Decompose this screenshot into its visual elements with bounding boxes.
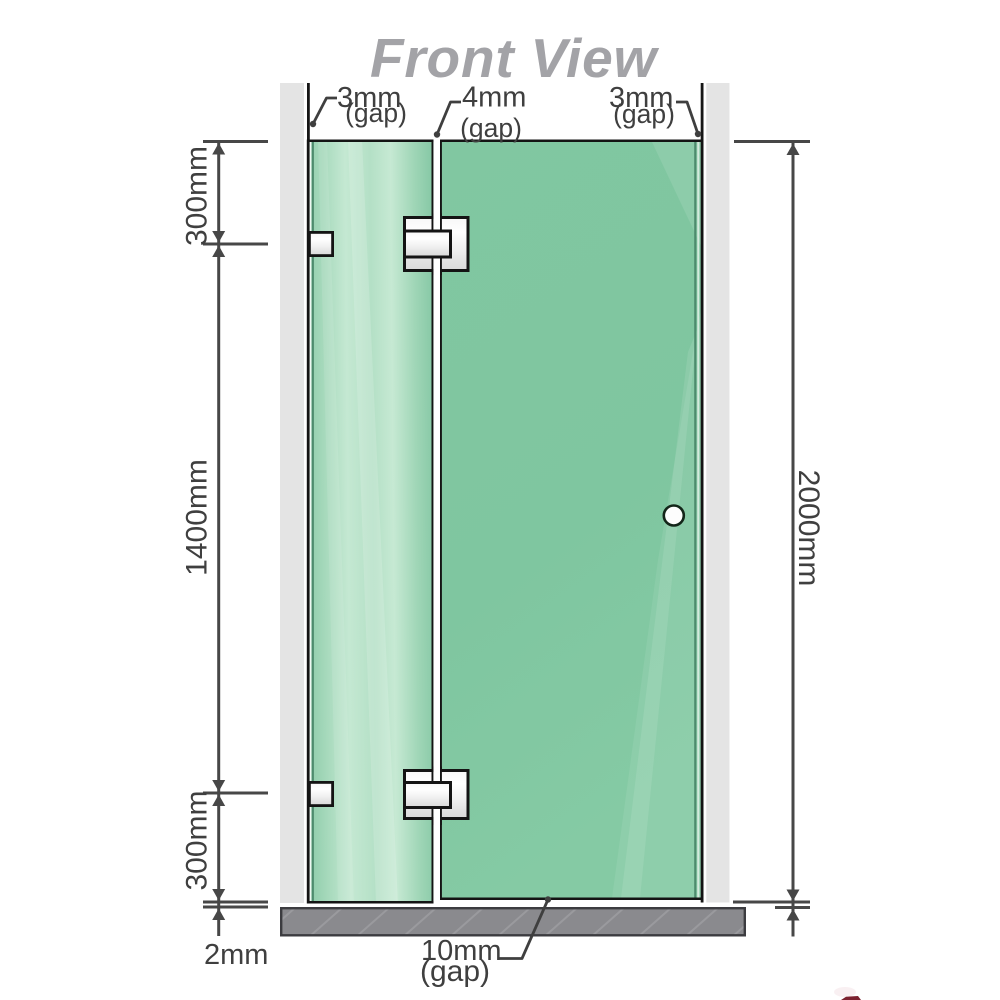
svg-text:1400mm: 1400mm [181,459,214,576]
svg-text:(gap): (gap) [420,955,490,988]
svg-text:300mm: 300mm [181,146,214,246]
svg-text:(gap): (gap) [613,99,675,129]
svg-text:2mm: 2mm [204,939,268,971]
svg-text:(gap): (gap) [460,113,522,143]
svg-text:300mm: 300mm [181,790,214,890]
svg-text:Front View: Front View [370,27,660,89]
svg-text:2000mm: 2000mm [792,470,825,587]
svg-text:4mm: 4mm [462,82,526,114]
svg-text:(gap): (gap) [345,98,407,128]
